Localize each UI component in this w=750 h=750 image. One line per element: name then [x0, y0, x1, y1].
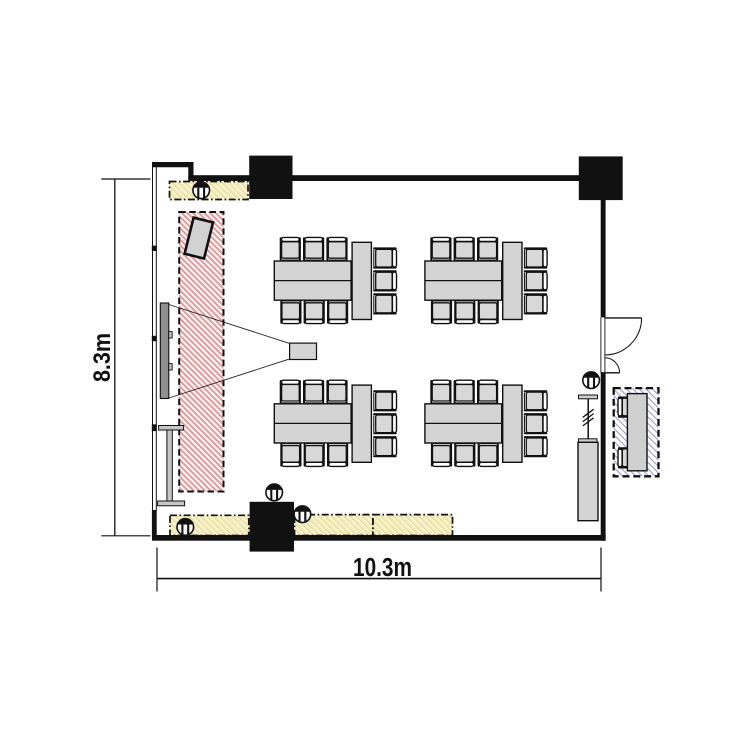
svg-text:10.3m: 10.3m [353, 553, 412, 582]
svg-text:8.3m: 8.3m [88, 333, 116, 382]
